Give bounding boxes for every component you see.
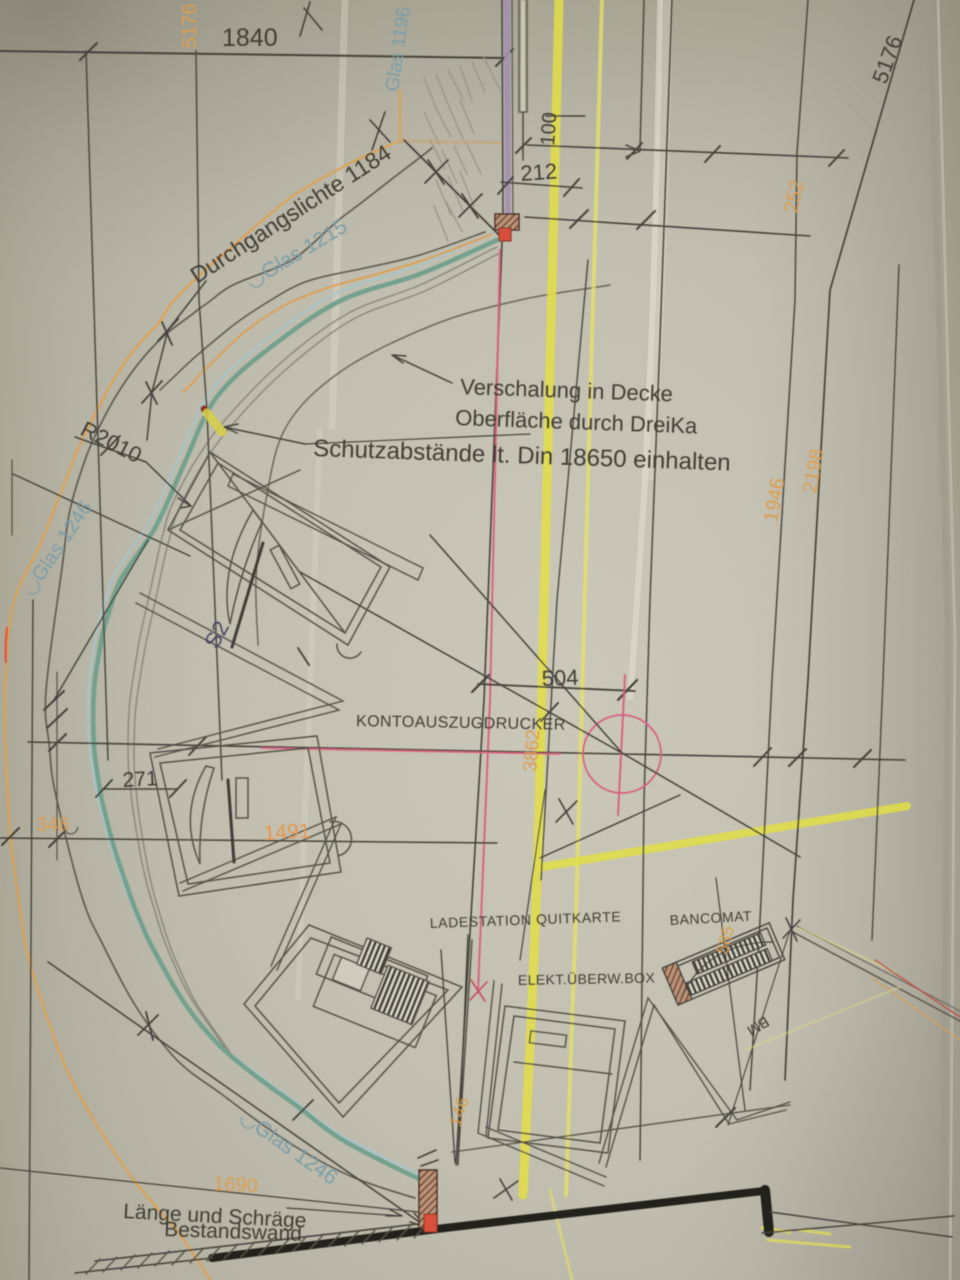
svg-text:1690: 1690: [213, 1173, 259, 1197]
svg-text:3862: 3862: [520, 728, 545, 772]
svg-text:100: 100: [537, 112, 561, 147]
svg-text:1491: 1491: [263, 820, 311, 845]
svg-text:271: 271: [122, 767, 158, 792]
svg-text:504: 504: [541, 665, 579, 691]
svg-text:5176: 5176: [179, 4, 201, 49]
svg-text:◡: ◡: [62, 815, 79, 837]
svg-text:212: 212: [520, 158, 558, 186]
svg-text:Bestandswand: Bestandswand: [164, 1218, 302, 1246]
svg-text:1840: 1840: [222, 24, 278, 52]
svg-text:ELEKT.ÜBERW.BOX: ELEKT.ÜBERW.BOX: [518, 969, 656, 988]
